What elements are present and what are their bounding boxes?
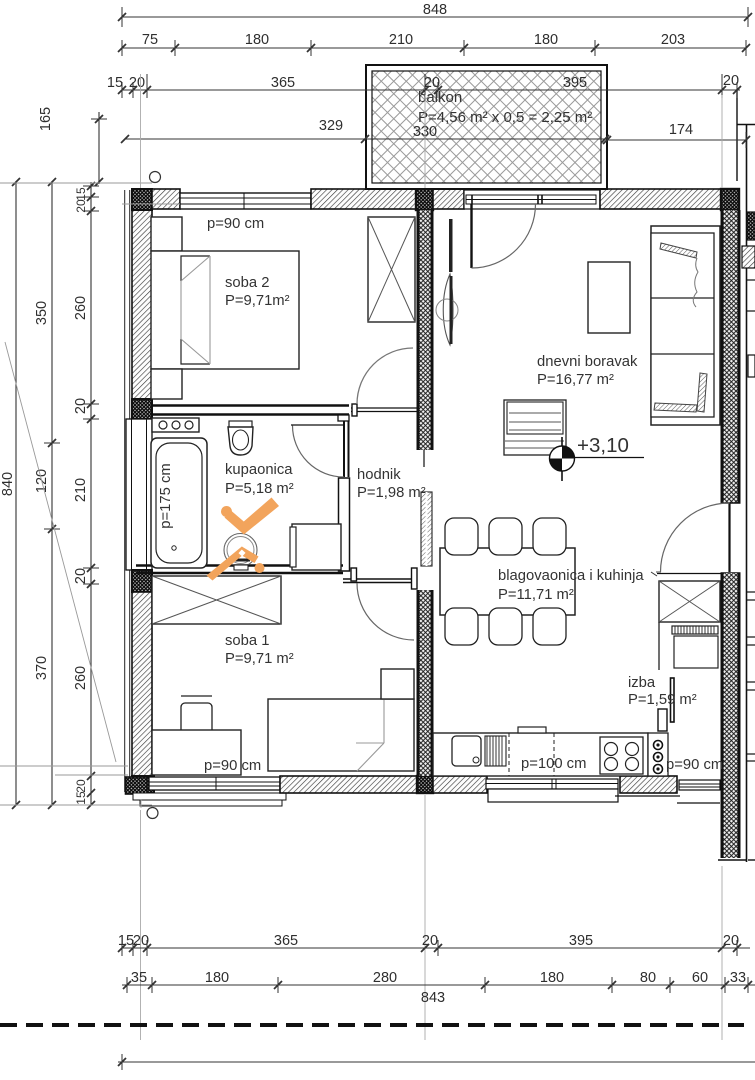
svg-text:20: 20 (74, 779, 88, 793)
svg-text:840: 840 (0, 472, 16, 496)
svg-text:p=175 cm: p=175 cm (158, 463, 174, 528)
svg-text:395: 395 (563, 75, 587, 91)
svg-text:280: 280 (373, 970, 397, 986)
svg-text:260: 260 (73, 666, 89, 690)
svg-text:60: 60 (692, 970, 708, 986)
svg-text:20: 20 (74, 199, 88, 213)
svg-text:15: 15 (118, 933, 134, 949)
svg-text:hodnik: hodnik (357, 467, 401, 483)
svg-text:210: 210 (73, 478, 89, 502)
svg-text:365: 365 (274, 933, 298, 949)
svg-text:20: 20 (73, 568, 89, 584)
svg-text:329: 329 (319, 118, 343, 134)
svg-text:370: 370 (34, 656, 50, 680)
svg-text:260: 260 (73, 296, 89, 320)
svg-text:365: 365 (271, 75, 295, 91)
svg-text:P=5,18 m²: P=5,18 m² (225, 481, 294, 497)
svg-text:20: 20 (424, 75, 440, 91)
svg-text:P=11,71 m²: P=11,71 m² (498, 587, 574, 603)
svg-text:P=1,98 m²: P=1,98 m² (357, 485, 426, 501)
svg-text:20: 20 (73, 398, 89, 414)
svg-text:350: 350 (34, 301, 50, 325)
svg-text:20: 20 (723, 73, 739, 89)
svg-text:180: 180 (540, 970, 564, 986)
svg-text:p=90 cm: p=90 cm (207, 216, 264, 232)
svg-text:soba 2: soba 2 (225, 275, 269, 291)
svg-text:izba: izba (628, 675, 656, 691)
svg-text:180: 180 (534, 32, 558, 48)
svg-text:20: 20 (422, 933, 438, 949)
svg-text:180: 180 (205, 970, 229, 986)
svg-text:p=100 cm: p=100 cm (521, 756, 586, 772)
svg-text:843: 843 (421, 990, 445, 1006)
svg-text:395: 395 (569, 933, 593, 949)
svg-text:dnevni boravak: dnevni boravak (537, 354, 638, 370)
svg-text:+3,10: +3,10 (577, 434, 629, 457)
svg-text:174: 174 (669, 122, 693, 138)
svg-text:kupaonica: kupaonica (225, 462, 293, 478)
svg-text:15: 15 (107, 75, 123, 91)
svg-text:75: 75 (142, 32, 158, 48)
svg-text:20: 20 (133, 933, 149, 949)
svg-text:p=90 cm: p=90 cm (204, 758, 261, 774)
svg-text:P=16,77 m²: P=16,77 m² (537, 372, 614, 388)
svg-text:848: 848 (423, 2, 447, 18)
svg-text:35: 35 (131, 970, 147, 986)
svg-text:165: 165 (38, 107, 54, 131)
svg-text:33: 33 (730, 970, 746, 986)
svg-text:20: 20 (723, 933, 739, 949)
svg-text:P=9,71m²: P=9,71m² (225, 293, 290, 309)
svg-text:80: 80 (640, 970, 656, 986)
svg-text:P=1,59 m²: P=1,59 m² (628, 692, 697, 708)
svg-text:203: 203 (661, 32, 685, 48)
svg-text:15: 15 (74, 791, 88, 805)
svg-text:p=90 cm: p=90 cm (666, 757, 723, 773)
svg-text:210: 210 (389, 32, 413, 48)
svg-text:blagovaonica i kuhinja: blagovaonica i kuhinja (498, 568, 644, 584)
svg-text:15: 15 (74, 187, 88, 201)
svg-text:soba 1: soba 1 (225, 633, 269, 649)
svg-text:180: 180 (245, 32, 269, 48)
svg-text:P=9,71 m²: P=9,71 m² (225, 651, 294, 667)
svg-text:20: 20 (129, 75, 145, 91)
svg-text:P=4,56 m² x 0,5 = 2,25 m²: P=4,56 m² x 0,5 = 2,25 m² (418, 109, 592, 126)
